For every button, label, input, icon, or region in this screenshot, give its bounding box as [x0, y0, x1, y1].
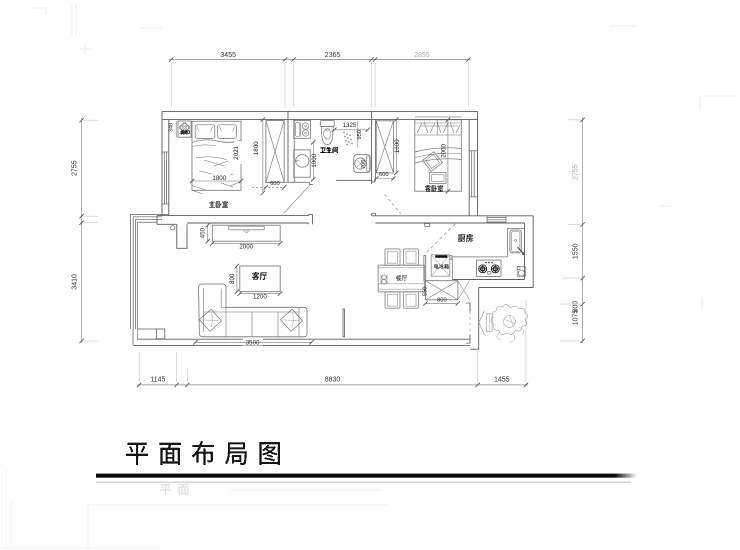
svg-text:8830: 8830	[325, 377, 341, 384]
svg-text:2755: 2755	[572, 164, 579, 180]
svg-text:1325: 1325	[343, 122, 357, 129]
svg-text:1800: 1800	[253, 141, 260, 155]
svg-text:2855: 2855	[414, 52, 430, 59]
svg-text:450: 450	[200, 227, 207, 238]
svg-text:3455: 3455	[220, 52, 236, 59]
svg-text:800: 800	[437, 297, 447, 303]
svg-text:1145: 1145	[150, 377, 165, 384]
svg-text:1455: 1455	[494, 377, 510, 384]
svg-text:2021: 2021	[233, 145, 240, 159]
svg-text:348: 348	[169, 123, 175, 132]
svg-text:2755: 2755	[72, 160, 79, 176]
svg-text:600: 600	[379, 172, 389, 178]
svg-text:600: 600	[270, 181, 280, 187]
svg-text:800: 800	[229, 273, 236, 284]
svg-text:600: 600	[181, 130, 190, 136]
svg-text:1200: 1200	[253, 294, 267, 301]
svg-text:950: 950	[357, 130, 363, 140]
svg-text:2000: 2000	[239, 244, 253, 251]
svg-text:1075: 1075	[572, 310, 579, 326]
svg-text:1550: 1550	[572, 243, 579, 259]
svg-text:3410: 3410	[72, 274, 79, 290]
svg-text:2365: 2365	[325, 52, 341, 59]
svg-text:550: 550	[422, 286, 428, 296]
svg-text:700: 700	[361, 159, 367, 169]
svg-text:2000: 2000	[440, 144, 447, 158]
svg-text:1000: 1000	[311, 153, 318, 167]
svg-text:3500: 3500	[246, 339, 260, 346]
svg-text:1800: 1800	[212, 175, 226, 182]
svg-text:1600: 1600	[394, 139, 401, 153]
